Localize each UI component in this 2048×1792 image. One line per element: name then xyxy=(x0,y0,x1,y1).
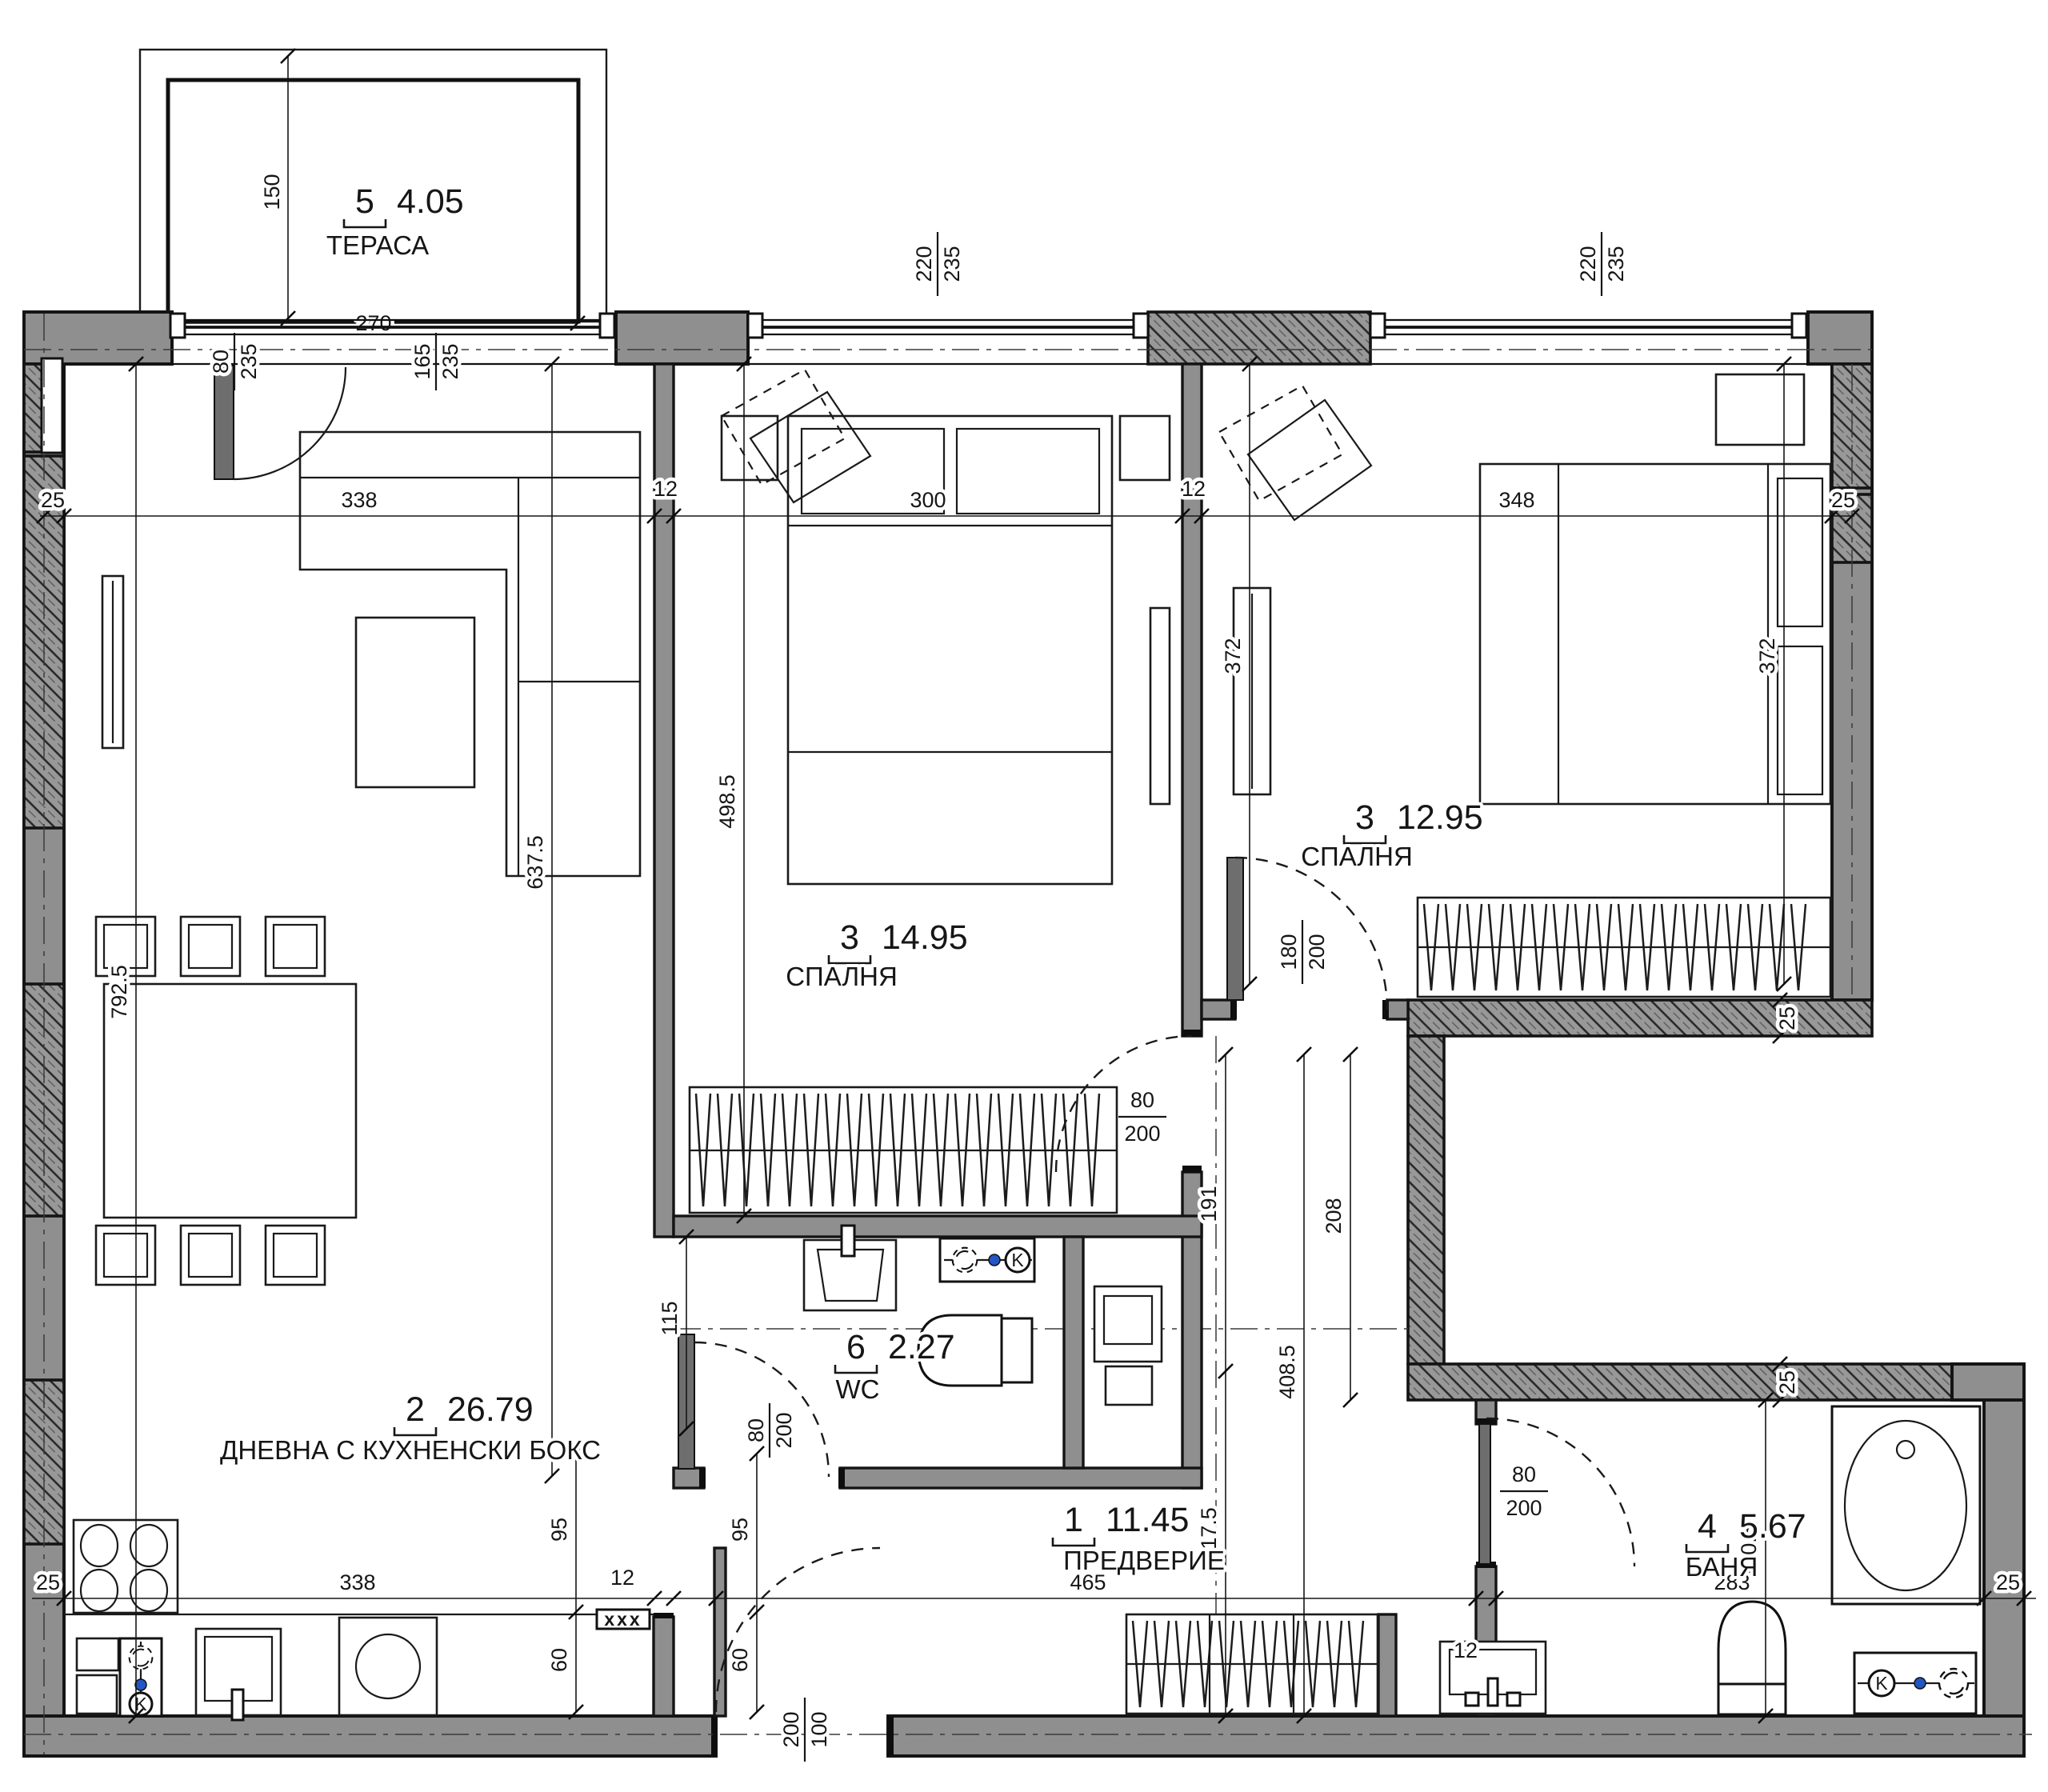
svg-text:637.5: 637.5 xyxy=(523,835,547,890)
svg-text:80: 80 xyxy=(209,350,233,374)
kitchen-shaft: K xyxy=(120,1638,162,1716)
svg-text:3: 3 xyxy=(1355,798,1374,837)
svg-text:6: 6 xyxy=(846,1328,866,1366)
svg-text:11.45: 11.45 xyxy=(1106,1501,1189,1539)
dim-220-235: 220 235 xyxy=(912,232,964,296)
wall-kitchen-stub xyxy=(654,1617,674,1716)
dim-bedroom1-door: 80 200 xyxy=(1118,1088,1166,1146)
top-wall-pier-1 xyxy=(616,312,748,364)
svg-text:80: 80 xyxy=(744,1418,768,1442)
nightstand xyxy=(1716,374,1804,445)
water-point-icon xyxy=(135,1679,146,1690)
tv-angled xyxy=(1248,400,1371,520)
window-jamb-block xyxy=(600,314,614,338)
dishwasher xyxy=(339,1618,437,1715)
svg-text:K: K xyxy=(1011,1250,1024,1270)
room-label-bedroom2: 3 12.95 СПАЛНЯ xyxy=(1301,798,1482,871)
svg-text:4.05: 4.05 xyxy=(397,182,464,221)
svg-text:100: 100 xyxy=(807,1711,831,1747)
svg-text:200: 200 xyxy=(1305,934,1329,970)
wall-bedroom2-door-stub-left xyxy=(1202,1000,1235,1019)
svg-text:95: 95 xyxy=(728,1518,752,1542)
window-jamb-block xyxy=(170,314,185,338)
svg-text:80: 80 xyxy=(1512,1462,1536,1486)
wall-hall-wardrobe-stub xyxy=(1378,1614,1396,1716)
svg-text:792.5: 792.5 xyxy=(107,965,131,1019)
svg-text:2.27: 2.27 xyxy=(888,1328,955,1366)
top-wall-corner-left xyxy=(24,312,172,364)
svg-text:220: 220 xyxy=(1576,246,1600,282)
coffee-table xyxy=(356,618,474,787)
svg-text:WC: WC xyxy=(836,1374,880,1404)
svg-text:348: 348 xyxy=(1498,488,1534,512)
window-jamb-block xyxy=(1134,314,1148,338)
svg-text:3: 3 xyxy=(840,918,859,957)
svg-text:xxx: xxx xyxy=(604,1609,642,1630)
svg-text:220: 220 xyxy=(912,246,936,282)
wall-bedroom1-bedroom2 xyxy=(1182,364,1202,1036)
dim-220-235: 220 235 xyxy=(1576,232,1628,296)
wall-wc-bottom-right xyxy=(840,1468,1202,1488)
wall-wc-closet xyxy=(1064,1237,1083,1468)
svg-text:191: 191 xyxy=(1197,1186,1221,1222)
core-wall-left-hatched xyxy=(1408,1036,1444,1364)
wall-entry-screen xyxy=(714,1548,726,1716)
svg-text:200: 200 xyxy=(1506,1496,1542,1520)
room-label-wc: 6 2.27 WC xyxy=(835,1328,955,1404)
svg-text:12: 12 xyxy=(654,477,678,501)
kitchen-cabinet xyxy=(77,1675,117,1714)
svg-text:180: 180 xyxy=(1277,934,1301,970)
svg-text:95: 95 xyxy=(547,1518,571,1542)
floor-plan-page: 150 270 xyxy=(0,0,2048,1792)
svg-text:338: 338 xyxy=(341,488,377,512)
bathtub xyxy=(1832,1406,1980,1604)
svg-text:2: 2 xyxy=(406,1390,425,1429)
svg-text:СПАЛНЯ: СПАЛНЯ xyxy=(1301,842,1413,871)
bottom-wall-right xyxy=(888,1716,2024,1756)
bottom-wall-left xyxy=(24,1716,716,1756)
svg-text:25: 25 xyxy=(1996,1570,2020,1594)
svg-text:ДНЕВНА С КУХНЕНСКИ БОКС: ДНЕВНА С КУХНЕНСКИ БОКС xyxy=(220,1435,601,1465)
room-label-bedroom1: 3 14.95 СПАЛНЯ xyxy=(786,918,967,991)
kitchen: K xxx xyxy=(64,1520,654,1720)
svg-text:12: 12 xyxy=(1182,477,1206,501)
room-label-living: 2 26.79 ДНЕВНА С КУХНЕНСКИ БОКС xyxy=(220,1390,601,1465)
dim-165-235: 165 235 xyxy=(410,333,462,390)
bed xyxy=(788,416,1112,884)
entry-jamb-left xyxy=(711,1716,717,1756)
svg-text:498.5: 498.5 xyxy=(715,774,739,829)
svg-text:1: 1 xyxy=(1064,1501,1083,1539)
faucet-icon xyxy=(232,1690,243,1720)
entry-jamb-right xyxy=(888,1716,894,1756)
bath-toilet xyxy=(1718,1602,1786,1714)
tv-shelf xyxy=(1150,608,1170,804)
window-bedroom2 xyxy=(1370,314,1808,364)
svg-text:25: 25 xyxy=(1831,488,1855,512)
svg-text:338: 338 xyxy=(339,1570,375,1594)
svg-text:ТЕРАСА: ТЕРАСА xyxy=(326,230,429,260)
svg-text:200: 200 xyxy=(779,1711,803,1747)
bath-door xyxy=(1479,1418,1634,1566)
terrace-depth-dim: 150 xyxy=(260,174,284,210)
closet-furniture xyxy=(1094,1286,1162,1405)
svg-text:300: 300 xyxy=(910,488,946,512)
svg-text:5: 5 xyxy=(355,182,374,221)
wc-shaft: K xyxy=(940,1238,1034,1282)
floor-plan-drawing: 150 270 xyxy=(0,0,2048,1792)
dim-entry-door: 200 100 xyxy=(779,1698,831,1762)
svg-text:235: 235 xyxy=(940,246,964,282)
dim-bedroom2-door: 180 200 xyxy=(1277,920,1329,984)
window-jamb-block xyxy=(1370,314,1385,338)
svg-text:12: 12 xyxy=(1454,1638,1478,1662)
kitchen-cabinet xyxy=(77,1638,118,1670)
svg-text:60: 60 xyxy=(728,1648,752,1672)
living-room-furniture: K xxx xyxy=(64,366,654,1720)
core-wall-bottom-hatched xyxy=(1408,1364,1952,1400)
svg-text:115: 115 xyxy=(658,1301,682,1335)
bath-wall-top-right xyxy=(1952,1364,2024,1400)
water-point-icon xyxy=(1914,1678,1926,1689)
faucet-icon xyxy=(1488,1678,1498,1706)
top-wall-pier-2-hatched xyxy=(1148,312,1370,364)
window-jamb-block xyxy=(1792,314,1806,338)
svg-text:СПАЛНЯ: СПАЛНЯ xyxy=(786,962,898,991)
wall-bedroom2-door-stub-right xyxy=(1387,1000,1408,1019)
svg-text:5.67: 5.67 xyxy=(1739,1507,1806,1546)
svg-text:12: 12 xyxy=(610,1566,634,1590)
bedroom2-door xyxy=(1227,858,1387,1010)
svg-text:200: 200 xyxy=(1124,1122,1160,1146)
svg-text:235: 235 xyxy=(1604,246,1628,282)
core-wall-top-hatched xyxy=(1408,1000,1872,1036)
entry-door-swing xyxy=(716,1548,880,1712)
terrace-width-dim: 270 xyxy=(355,311,391,335)
svg-text:K: K xyxy=(1875,1673,1888,1694)
svg-text:25: 25 xyxy=(36,1570,60,1594)
svg-text:60: 60 xyxy=(547,1648,571,1672)
svg-text:208: 208 xyxy=(1322,1198,1346,1234)
window-bedroom1 xyxy=(748,314,1148,364)
room-label-bath: 4 5.67 БАНЯ xyxy=(1686,1507,1806,1582)
svg-text:26.79: 26.79 xyxy=(447,1390,534,1429)
bedroom2-furniture xyxy=(1219,374,1830,1010)
hall xyxy=(716,1548,1378,1714)
faucet-icon xyxy=(842,1226,854,1256)
dim-wc-door: 80 200 xyxy=(744,1403,796,1458)
left-wall-niche xyxy=(42,358,62,453)
dining-table xyxy=(104,984,356,1218)
water-point-icon xyxy=(989,1254,1000,1266)
svg-text:12.95: 12.95 xyxy=(1397,798,1483,837)
svg-text:235: 235 xyxy=(237,343,261,379)
svg-text:372: 372 xyxy=(1755,638,1779,674)
svg-text:ПРЕДВЕРИЕ: ПРЕДВЕРИЕ xyxy=(1063,1546,1225,1575)
svg-text:4: 4 xyxy=(1698,1507,1717,1546)
top-wall-corner-right xyxy=(1808,312,1872,364)
svg-text:235: 235 xyxy=(438,343,462,379)
svg-text:25: 25 xyxy=(1775,1006,1799,1030)
dim-bath-door: 80 200 xyxy=(1500,1462,1548,1520)
window-jamb-block xyxy=(748,314,762,338)
svg-text:372: 372 xyxy=(1221,638,1245,674)
svg-text:165: 165 xyxy=(410,343,434,379)
svg-text:80: 80 xyxy=(1130,1088,1154,1112)
nightstand xyxy=(1120,416,1170,480)
nightstand xyxy=(722,416,778,480)
wall-wc-top xyxy=(674,1216,1202,1237)
bath-shaft: K xyxy=(1854,1653,1976,1714)
svg-text:200: 200 xyxy=(772,1412,796,1448)
svg-text:БАНЯ: БАНЯ xyxy=(1686,1552,1758,1582)
svg-text:14.95: 14.95 xyxy=(882,918,968,957)
svg-text:25: 25 xyxy=(1775,1370,1799,1394)
svg-text:25: 25 xyxy=(41,488,65,512)
svg-text:408.5: 408.5 xyxy=(1275,1345,1299,1399)
room-label-terrace: 5 4.05 ТЕРАСА xyxy=(326,182,464,260)
